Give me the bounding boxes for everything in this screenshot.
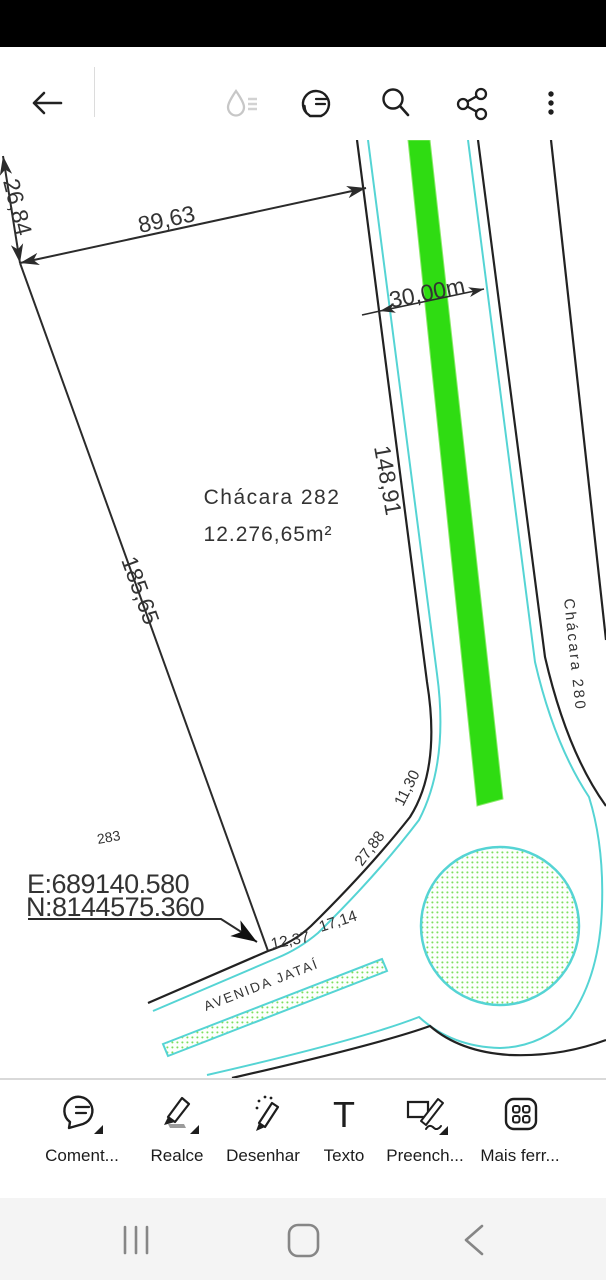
annotation-toolbar: Coment... Realce Desenhar T Texto: [0, 1080, 606, 1198]
ink-tool-button[interactable]: [220, 81, 264, 125]
status-bar: [0, 0, 606, 47]
back-button[interactable]: [25, 81, 69, 125]
acrobat-mobile-viewer: { "topbar": { "icons": ["back-arrow", "i…: [0, 0, 606, 1280]
highlight-tool-button[interactable]: Realce: [129, 1090, 225, 1166]
android-nav-bar: [0, 1198, 606, 1280]
fill-sign-tool-button[interactable]: Preench...: [377, 1090, 473, 1166]
toolbar-separator: [94, 67, 95, 117]
share-icon: [450, 81, 494, 125]
home-button[interactable]: [289, 1225, 318, 1256]
more-tools-label: Mais ferr...: [480, 1146, 559, 1166]
highlight-tool-icon: [151, 1090, 203, 1140]
overflow-menu-button[interactable]: [529, 81, 573, 125]
top-toolbar: [0, 47, 606, 140]
text-tool-icon: T: [318, 1090, 370, 1140]
nav-icons: [0, 1198, 606, 1280]
fill-sign-tool-label: Preench...: [386, 1146, 464, 1166]
comments-list-icon: [296, 81, 340, 125]
recents-icon: [125, 1227, 147, 1253]
fill-sign-tool-icon: [399, 1090, 451, 1140]
parcel-area-label: 12.276,65m²: [204, 523, 333, 546]
search-button[interactable]: [374, 81, 418, 125]
share-button[interactable]: [450, 81, 494, 125]
survey-drawing: 89,63 26,84 185,65 148,91 30,00m Chácara…: [0, 140, 606, 1078]
back-nav-button[interactable]: [466, 1226, 482, 1254]
search-icon: [374, 81, 418, 125]
comment-tool-label: Coment...: [45, 1146, 119, 1166]
text-tool-glyph: T: [333, 1094, 355, 1135]
coordinate-n-label: N:8144575.360: [26, 892, 204, 922]
back-arrow-icon: [27, 83, 67, 123]
draw-tool-icon: [237, 1090, 289, 1140]
home-icon: [289, 1225, 318, 1256]
back-nav-icon: [466, 1226, 482, 1254]
parcel-name-label: Chácara 282: [204, 486, 341, 509]
overflow-menu-icon: [529, 81, 573, 125]
comments-button[interactable]: [296, 81, 340, 125]
highlight-tool-label: Realce: [151, 1146, 204, 1166]
more-tools-icon: [494, 1090, 546, 1140]
text-tool-label: Texto: [324, 1146, 365, 1166]
recents-button[interactable]: [125, 1227, 147, 1253]
comment-tool-button[interactable]: Coment...: [34, 1090, 130, 1166]
comment-tool-icon: [56, 1090, 108, 1140]
roundabout-island: [421, 847, 579, 1005]
document-page[interactable]: 89,63 26,84 185,65 148,91 30,00m Chácara…: [0, 140, 606, 1078]
more-tools-button[interactable]: Mais ferr...: [472, 1090, 568, 1166]
ink-drop-icon: [220, 81, 264, 125]
draw-tool-label: Desenhar: [226, 1146, 300, 1166]
